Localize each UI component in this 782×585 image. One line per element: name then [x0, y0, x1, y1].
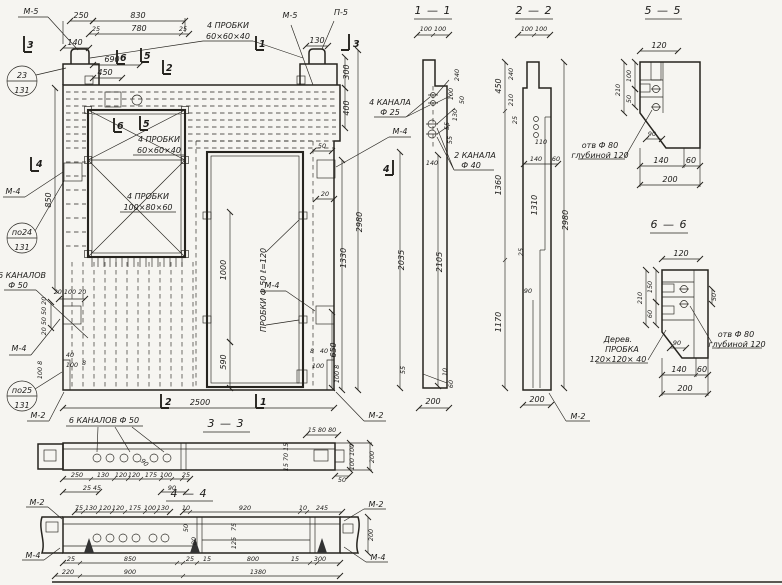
dim-bl-8: 8: [82, 359, 86, 367]
cut-mark-3-left: 3: [27, 40, 34, 51]
channel-dashed-lines: [72, 262, 193, 388]
section-6-6-title: 6 — 6: [651, 218, 688, 231]
s44-dim-80: 80: [190, 537, 198, 545]
dim-bl-100: 100: [66, 361, 78, 369]
s33-dim-100: 100: [160, 471, 172, 479]
s33-dim-120b: 120: [128, 471, 140, 479]
cut-mark-4-right: 4: [382, 164, 390, 175]
s44-dim-175: 175: [129, 504, 141, 512]
s11-dim-200: 200: [425, 397, 440, 406]
callout-m5-mid: М-5: [283, 11, 298, 20]
dim-450: 450: [97, 68, 112, 77]
callout-m2-bottom-right: М-2: [369, 411, 384, 420]
dim-830: 830: [130, 11, 145, 20]
s55-dim-140: 140: [653, 156, 668, 165]
s11-dim-55-bot: 55: [399, 366, 407, 374]
dim-850: 850: [44, 192, 53, 207]
balloon-131-b: 131: [14, 243, 29, 252]
s44-dim-900: 900: [124, 568, 136, 576]
s55-callout-glubina: глубиной 120: [571, 151, 628, 160]
s66-dim-210: 210: [636, 292, 644, 304]
view-section-2-2: 2 — 2 100 100 450 1360 1170 240 210 25 1…: [494, 4, 590, 421]
s66-callout-otv-f80: отв Ф 80: [718, 330, 754, 339]
s44-dim-10b: 10: [299, 504, 307, 512]
s33-dim-250: 250: [71, 471, 83, 479]
dim-2980-main: 2980: [355, 212, 364, 232]
s22-dim-60: 60: [552, 155, 560, 163]
callout-2-kanala-dia: Ф 40: [461, 161, 481, 170]
callout-m4-top-left: М-4: [6, 187, 21, 196]
dim-br-40: 40: [320, 347, 328, 355]
callout-probki-top: 4 ПРОБКИ: [207, 21, 249, 30]
s22-dim-1170: 1170: [494, 312, 503, 332]
callout-6-kanalov-dia: Ф 50: [8, 281, 28, 290]
s22-dim-240: 240: [507, 68, 515, 80]
dim-50-right-edge: 50: [318, 142, 326, 150]
s55-dim-120: 120: [651, 41, 666, 50]
s44-dim-100: 100: [144, 504, 156, 512]
s44-dim-220: 220: [62, 568, 74, 576]
cut-mark-6-window: 6: [117, 121, 124, 132]
s44-callout-m2-right: М-2: [369, 500, 384, 509]
panel-outline: [63, 49, 340, 390]
s22-dim-450: 450: [494, 78, 503, 93]
dim-590: 590: [219, 354, 228, 369]
s22-dim-200: 200: [529, 395, 544, 404]
dim-bl-vert: 100 8: [36, 361, 44, 379]
section-4-4-title: 4 — 4: [171, 487, 208, 500]
s55-dim-90: 90: [648, 130, 656, 138]
s44-dim-15a: 15: [203, 555, 211, 563]
s11-dim-240: 240: [453, 69, 461, 81]
s11-dim-130: 130: [451, 109, 459, 121]
s44-dim-125: 125: [230, 537, 238, 549]
dim-130: 130: [309, 36, 324, 45]
s22-dim-25b: 25: [517, 248, 525, 256]
cut-mark-3-right: 3: [353, 39, 360, 50]
window-opening: [88, 110, 185, 257]
masonry-hatch-lines: [66, 92, 336, 387]
s66-callout-probka-size: 120×120× 40: [590, 355, 647, 364]
dim-140: 140: [67, 38, 82, 47]
section-1-1-title: 1 — 1: [415, 4, 452, 17]
s11-dim-2105: 2105: [435, 252, 444, 272]
s44-callout-m4-left: М-4: [26, 551, 41, 560]
s55-dim-200: 200: [662, 175, 677, 184]
cut-mark-4-left: 4: [35, 159, 43, 170]
callout-4-kanala: 4 КАНАЛА: [369, 98, 411, 107]
dim-650: 650: [329, 342, 338, 357]
s33-dim-50: 50: [338, 476, 346, 484]
section-5-5-title: 5 — 5: [645, 4, 682, 17]
balloon-po25: по25: [12, 386, 32, 395]
cut-mark-1-top: 1: [259, 39, 266, 50]
s66-dim-120: 120: [673, 249, 688, 258]
s33-dim-100-100: 100 100: [348, 444, 356, 470]
s55-dim-210: 210: [614, 84, 622, 96]
s11-dim-100: 100: [447, 88, 455, 100]
balloon-23: 23: [17, 71, 27, 80]
s55-dim-100: 100: [625, 70, 633, 82]
callout-6-kanalov: 6 КАНАЛОВ: [0, 271, 46, 280]
s22-dim-100-100: 100 100: [521, 25, 547, 33]
s44-dim-1380: 1380: [250, 568, 266, 576]
s44-dim-75b: 75: [230, 523, 238, 531]
s66-callout-probka: ПРОБКА: [605, 345, 639, 354]
s66-dim-60: 60: [646, 310, 654, 318]
s44-dim-25b: 25: [186, 555, 194, 563]
drawing-sheet: М-5 250 830 140 25 780 25 4 ПРОБКИ 60×60…: [0, 0, 782, 585]
dim-br-100: 100: [312, 362, 324, 370]
s44-dim-800: 800: [247, 555, 259, 563]
s33-dim-200: 200: [368, 451, 376, 463]
s44-dim-25a: 25: [67, 555, 75, 563]
s55-dim-60: 60: [686, 156, 696, 165]
s33-dim-175: 175: [145, 471, 157, 479]
dim-1330: 1330: [339, 248, 348, 268]
cut-mark-2-top: 2: [166, 63, 173, 74]
s44-dim-200: 200: [367, 529, 375, 541]
dim-1000: 1000: [219, 260, 228, 280]
s44-dim-920: 920: [239, 504, 251, 512]
s33-dim-15-80-80: 15 80 80: [308, 426, 336, 434]
view-section-3-3: 3 — 3 6 КАНАЛОВ Ф 50 250 130 120 120 175…: [38, 416, 376, 492]
s44-dim-300: 300: [314, 555, 326, 563]
panel-working-drawing: М-5 250 830 140 25 780 25 4 ПРОБКИ 60×60…: [0, 0, 782, 585]
s22-dim-110: 110: [535, 138, 547, 146]
dim-400: 400: [342, 100, 351, 115]
callout-m2-bottom-left: М-2: [31, 411, 46, 420]
s22-dim-2980: 2980: [561, 210, 570, 230]
callout-probki-window2-size: 100×80×60: [123, 203, 172, 212]
dim-br-vert: 100 8: [333, 365, 341, 383]
s44-dim-130b: 130: [157, 504, 169, 512]
s33-dim-120a: 120: [115, 471, 127, 479]
s44-dim-10a: 10: [182, 504, 190, 512]
s44-dim-120b: 120: [112, 504, 124, 512]
s33-dim-25b: 25: [83, 484, 91, 492]
s33-dim-90-diag: 90: [139, 457, 150, 468]
s22-dim-140: 140: [530, 155, 542, 163]
s66-callout-glubina: глубиной 120: [708, 340, 765, 349]
dim-780: 780: [131, 24, 146, 33]
s11-dim-2035: 2035: [397, 250, 406, 270]
cut-mark-5-window: 5: [143, 119, 150, 130]
s55-dim-50: 50: [625, 95, 633, 103]
s33-dim-45: 45: [93, 484, 101, 492]
dim-250: 250: [73, 11, 88, 20]
s66-dim-150: 150: [646, 281, 654, 293]
s11-dim-55b: 55: [446, 136, 454, 144]
view-section-5-5: 5 — 5 120 210 100 50 90 отв Ф 80 глубино…: [571, 4, 700, 187]
s22-dim-1360: 1360: [494, 175, 503, 195]
balloon-131-a: 131: [14, 86, 29, 95]
callout-2-kanala: 2 КАНАЛА: [454, 151, 496, 160]
s44-dim-130a: 130: [85, 504, 97, 512]
s44-dim-75: 75: [75, 504, 83, 512]
position-balloons: [7, 66, 37, 411]
s44-callout-m2-left: М-2: [30, 498, 45, 507]
view-main-elevation: М-5 250 830 140 25 780 25 4 ПРОБКИ 60×60…: [0, 7, 411, 421]
callout-probki-door: ПРОБКИ Ф 50 ℓ=120: [259, 248, 268, 332]
callout-probki-window1: 4 ПРОБКИ: [138, 135, 180, 144]
callout-probki-window1-size: 60×60×40: [137, 146, 181, 155]
callout-p5: П-5: [334, 8, 348, 17]
dim-insert-vertical: 20 50 50 20: [40, 297, 48, 336]
cut-mark-5-top: 5: [144, 51, 151, 62]
s66-dim-140: 140: [671, 365, 686, 374]
s11-dim-55a: 55: [443, 122, 451, 130]
cut-mark-2-bottom: 2: [165, 397, 172, 408]
dim-br-8: 8: [310, 347, 314, 355]
view-section-1-1: 1 — 1 100 100 4 КАНАЛА Ф 25 2 КАНАЛА Ф 4…: [369, 4, 496, 408]
callout-m5-left: М-5: [24, 7, 39, 16]
callout-m4-bottom-left: М-4: [12, 344, 27, 353]
callout-m4-top-right: М-4: [393, 127, 408, 136]
s33-dim-130: 130: [97, 471, 109, 479]
s44-dim-245: 245: [316, 504, 328, 512]
s22-dim-90: 90: [524, 287, 532, 295]
comb-ticks-under-window: [92, 258, 182, 267]
cut-mark-6-top: 6: [120, 53, 127, 64]
s44-dim-50: 50: [182, 524, 190, 532]
s22-dim-25a: 25: [511, 116, 519, 124]
s44-dim-15b: 15: [291, 555, 299, 563]
balloon-131-c: 131: [14, 401, 29, 410]
s55-callout-otv-f80: отв Ф 80: [582, 141, 618, 150]
dim-bl-40: 40: [66, 351, 74, 359]
callout-probki-top-size: 60×60×40: [206, 32, 250, 41]
s66-dim-200: 200: [677, 384, 692, 393]
s44-dim-850: 850: [124, 555, 136, 563]
dim-2500: 2500: [190, 398, 210, 407]
s11-dim-60-bot: 60: [447, 380, 455, 388]
s11-dim-140: 140: [426, 159, 438, 167]
s22-dim-210: 210: [507, 94, 515, 106]
s33-dim-25a: 25: [182, 471, 190, 479]
s66-dim-60b: 60: [697, 365, 707, 374]
s22-callout-m2: М-2: [571, 412, 586, 421]
section-3-3-title: 3 — 3: [208, 417, 245, 430]
s66-dim-90: 90: [673, 339, 681, 347]
dim-insert-horizontal: 20 100 20: [54, 288, 87, 296]
section-2-2-title: 2 — 2: [516, 4, 553, 17]
callout-m4-mid-right: М-4: [265, 281, 280, 290]
s66-dim-50: 50: [710, 293, 718, 301]
balloon-po24: по24: [12, 228, 32, 237]
dim-690: 690: [104, 55, 119, 64]
dim-25-left: 25: [92, 25, 100, 33]
s11-dim-10-bot: 10: [441, 368, 449, 376]
s33-dim-15-70-15: 15 70 15: [282, 443, 290, 471]
view-section-4-4: 4 — 4 75 130 120 120 175 100 130 10 920 …: [22, 487, 388, 578]
s44-dim-120a: 120: [99, 504, 111, 512]
callout-probki-window2: 4 ПРОБКИ: [127, 192, 169, 201]
dim-25-right: 25: [179, 25, 187, 33]
embedded-plates: [63, 76, 335, 383]
s33-callout-6-kanalov: 6 КАНАЛОВ Ф 50: [69, 416, 139, 425]
cut-mark-1-bottom: 1: [260, 397, 267, 408]
s11-dim-50: 50: [458, 96, 466, 104]
view-section-6-6: 6 — 6 120 210 150 60 50 90 Дерев. ПРОБКА…: [590, 218, 766, 396]
s44-callout-m4-right: М-4: [371, 553, 386, 562]
dim-300: 300: [342, 64, 351, 79]
s66-callout-derev: Дерев.: [603, 335, 632, 344]
s22-dim-1310: 1310: [530, 195, 539, 215]
s11-dim-100-100: 100 100: [420, 25, 446, 33]
dim-20-right-edge: 20: [321, 190, 329, 198]
callout-4-kanala-dia: Ф 25: [380, 108, 400, 117]
